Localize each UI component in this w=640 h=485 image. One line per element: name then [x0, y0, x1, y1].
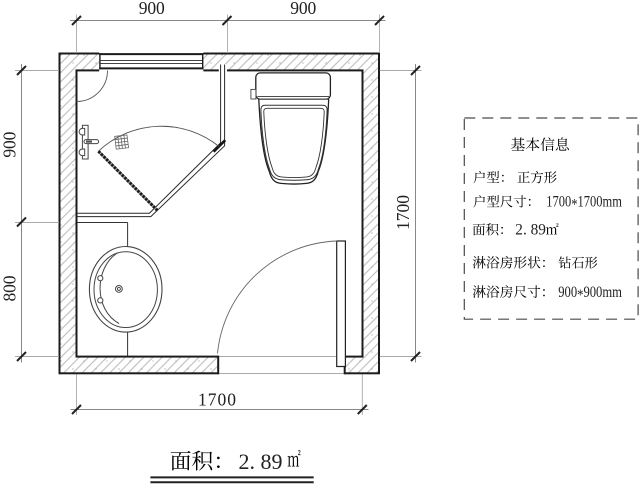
svg-text:900: 900: [139, 0, 165, 18]
svg-text:900: 900: [0, 131, 20, 157]
svg-text:1700: 1700: [393, 195, 413, 230]
svg-text:2. 89: 2. 89: [515, 221, 546, 238]
svg-text:2. 89: 2. 89: [239, 449, 283, 474]
svg-text:800: 800: [0, 275, 20, 301]
svg-text:900: 900: [290, 0, 316, 18]
svg-text:1700: 1700: [198, 390, 236, 410]
